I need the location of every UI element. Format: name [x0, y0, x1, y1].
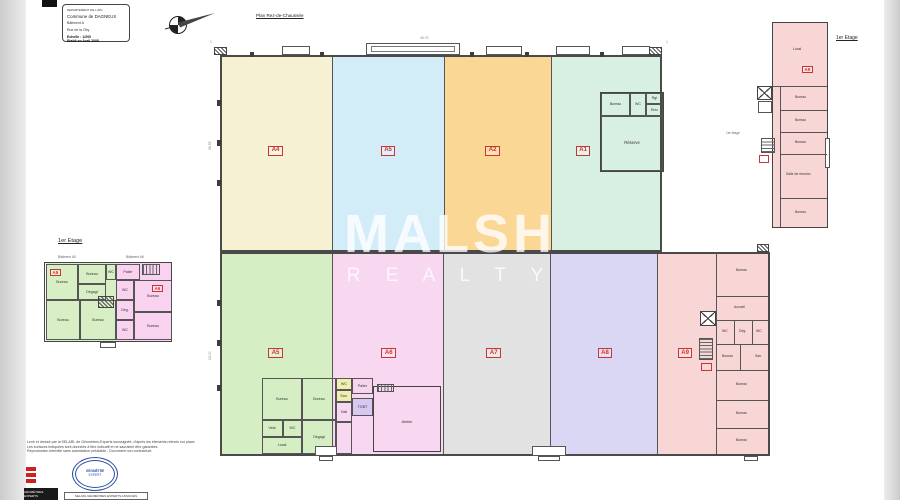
wall-hatch	[214, 47, 227, 55]
room: Bureau	[46, 300, 80, 340]
partition-wall	[717, 428, 768, 429]
room: Bureau	[302, 378, 336, 420]
entry-step	[100, 342, 116, 348]
pilaster	[217, 300, 221, 306]
partition-wall	[717, 320, 768, 321]
room: Palier	[352, 378, 373, 394]
room: Palier	[116, 264, 140, 280]
stairs-icon	[761, 138, 775, 153]
partition-wall	[773, 86, 827, 87]
dock-opening	[622, 46, 650, 55]
room: Bureau	[795, 118, 806, 122]
room	[758, 101, 772, 113]
stair-tag	[759, 155, 769, 163]
entry-porch	[315, 446, 337, 456]
zone-label-a1: A1	[576, 146, 591, 156]
title-block-commune: Commune de DAGNEUX	[67, 14, 125, 19]
partition-wall	[716, 252, 717, 454]
stairs-icon	[699, 338, 713, 360]
stairs-icon	[142, 264, 160, 275]
room: Local	[262, 437, 302, 454]
room: Bureau	[134, 312, 172, 340]
room: TGBT	[352, 398, 373, 416]
partition-wall	[717, 344, 768, 345]
entry-porch	[532, 446, 566, 456]
room: San.	[336, 390, 352, 402]
oge-logo-bar	[26, 479, 36, 483]
zone-label-a7: A7	[486, 348, 501, 358]
room: Accueil	[734, 305, 745, 309]
atelier-outline: Atelier	[373, 386, 441, 452]
pilaster	[217, 180, 221, 186]
partition-wall	[717, 400, 768, 401]
zone-a5-top: A5	[332, 57, 444, 250]
wall-hatch	[757, 244, 769, 252]
zone-label-a5-floor1: A5	[50, 269, 61, 276]
footer-note-line: Levé et dressé par la SELARL de Géomètre…	[27, 440, 196, 445]
dock-opening	[556, 46, 590, 55]
entry-step	[744, 456, 758, 461]
first-floor-right-title: 1er Etage	[836, 35, 858, 41]
room: Bureau	[736, 438, 747, 442]
grid-mark: 1	[210, 40, 212, 44]
room: Bureau	[795, 210, 806, 214]
firm-name-box: SELARL GÉOMÈTRES EXPERTS ASSOCIÉS	[64, 492, 148, 500]
zone-label-a4: A4	[268, 146, 283, 156]
room: Elec	[646, 104, 663, 116]
partition-wall	[780, 132, 827, 133]
oge-logo-bar	[26, 473, 36, 477]
room: Salle de réunion	[786, 172, 811, 176]
dock-opening-large	[366, 43, 460, 55]
room: WC	[106, 264, 116, 280]
zone-label-a6: A6	[381, 348, 396, 358]
title-block-building: Bâtiment A	[67, 21, 125, 25]
stair-tag	[701, 363, 712, 371]
room: Bureau	[795, 95, 806, 99]
dock-inner-line	[371, 46, 455, 52]
door-opening	[825, 138, 830, 168]
building-caption-a6: Bâtiment A6	[126, 255, 144, 259]
partition-wall	[717, 296, 768, 297]
pilaster	[217, 385, 221, 391]
oge-logo-bar	[26, 467, 36, 471]
wall-hatch	[649, 47, 662, 55]
room: Bureau	[736, 382, 747, 386]
ground-floor-top-row: A4 A5 A2 A1	[220, 55, 662, 252]
dimension-label: 36.55	[208, 142, 212, 151]
room: Bureau	[78, 264, 106, 284]
room: Vest.	[262, 420, 283, 437]
room: Bureau	[736, 411, 747, 415]
room: Dég.	[116, 300, 134, 320]
zone-label-a9: A9	[678, 348, 693, 358]
pilaster	[217, 100, 221, 106]
north-compass-icon	[163, 5, 218, 40]
partition-wall	[780, 87, 781, 227]
partition-wall	[717, 370, 768, 371]
dimension-label: 45.70	[420, 36, 429, 40]
room: San.	[755, 354, 762, 358]
pilaster	[250, 52, 254, 57]
partition-wall	[734, 320, 735, 344]
dock-opening	[486, 46, 522, 55]
oge-logo-banner: GÉOMÈTRES-EXPERTS	[24, 488, 58, 500]
zone-label-a5-bottom: A5	[268, 348, 283, 358]
footer-note-line: Reproduction interdite sans autorisation…	[27, 449, 196, 454]
room: Hall	[336, 402, 352, 422]
dock-opening	[282, 46, 310, 55]
corner-mark	[42, 0, 57, 7]
stairs-icon	[98, 296, 114, 308]
footer-notes: Levé et dressé par la SELARL de Géomètre…	[27, 440, 196, 454]
room: Local	[793, 47, 801, 51]
title-block-date: Etabli en Avril 2008	[67, 39, 125, 43]
room: Dég.	[739, 329, 746, 333]
title-block-address: Rue de la Oby	[67, 28, 125, 32]
zone-a8: A8	[550, 254, 657, 454]
partition-wall	[780, 110, 827, 111]
floor-plan-sheet: DEPARTEMENT DE L'AIN Commune de DAGNEUX …	[0, 0, 900, 500]
elevator-icon	[757, 86, 772, 100]
page-left-edge	[0, 0, 26, 500]
room: WC	[116, 320, 134, 340]
pilaster	[217, 340, 221, 346]
dimension-label: 24.00	[208, 352, 212, 361]
room: WC	[756, 329, 762, 333]
partition-wall	[780, 154, 827, 155]
pilaster	[525, 52, 529, 57]
pilaster	[217, 140, 221, 146]
surveyor-seal: GÉOMÈTRE EXPERT	[72, 457, 118, 491]
room: Bureau	[795, 140, 806, 144]
room: Bureau	[601, 93, 630, 116]
plan-title: Plan Rez-de-Chaussée	[256, 13, 304, 18]
pilaster	[470, 52, 474, 57]
room: WC	[722, 329, 728, 333]
entry-step	[538, 456, 560, 461]
room: Bureau	[262, 378, 302, 420]
zone-a4: A4	[222, 57, 332, 250]
first-floor-left-title: 1er Etage	[58, 238, 82, 244]
zone-label-a5-top: A5	[381, 146, 396, 156]
zone-label-a9-floor1: A9	[802, 66, 813, 73]
zone-a7: A7	[443, 254, 550, 454]
partition-wall	[780, 198, 827, 199]
zone-label-a2: A2	[485, 146, 500, 156]
room: WC	[283, 420, 302, 437]
zone-label-a6-floor1: A6	[152, 285, 163, 292]
title-block: DEPARTEMENT DE L'AIN Commune de DAGNEUX …	[62, 4, 130, 42]
zone-a2: A2	[444, 57, 551, 250]
room: WC	[336, 378, 352, 390]
room: Bureau	[722, 354, 733, 358]
seal-line2: EXPERT	[86, 474, 104, 478]
side-note: 1er étage	[726, 131, 740, 135]
partition-wall	[752, 320, 753, 344]
building-caption-a5: Bâtiment A5	[58, 255, 76, 259]
room: WC	[116, 280, 134, 300]
entry-step	[319, 456, 333, 461]
zone-label-a8: A8	[598, 348, 613, 358]
pilaster	[600, 52, 604, 57]
room	[336, 422, 352, 454]
elevator-icon	[700, 311, 716, 326]
room: Rgt	[646, 93, 663, 104]
room: Bureau	[736, 268, 747, 272]
partition-wall	[740, 344, 741, 370]
page-right-edge	[884, 0, 900, 500]
pilaster	[320, 52, 324, 57]
title-block-department: DEPARTEMENT DE L'AIN	[67, 8, 125, 12]
stairs-icon	[377, 384, 394, 392]
room: WC	[630, 93, 646, 116]
grid-mark: 1	[666, 40, 668, 44]
room: Réserve	[601, 116, 663, 171]
room: Atelier	[402, 420, 413, 424]
